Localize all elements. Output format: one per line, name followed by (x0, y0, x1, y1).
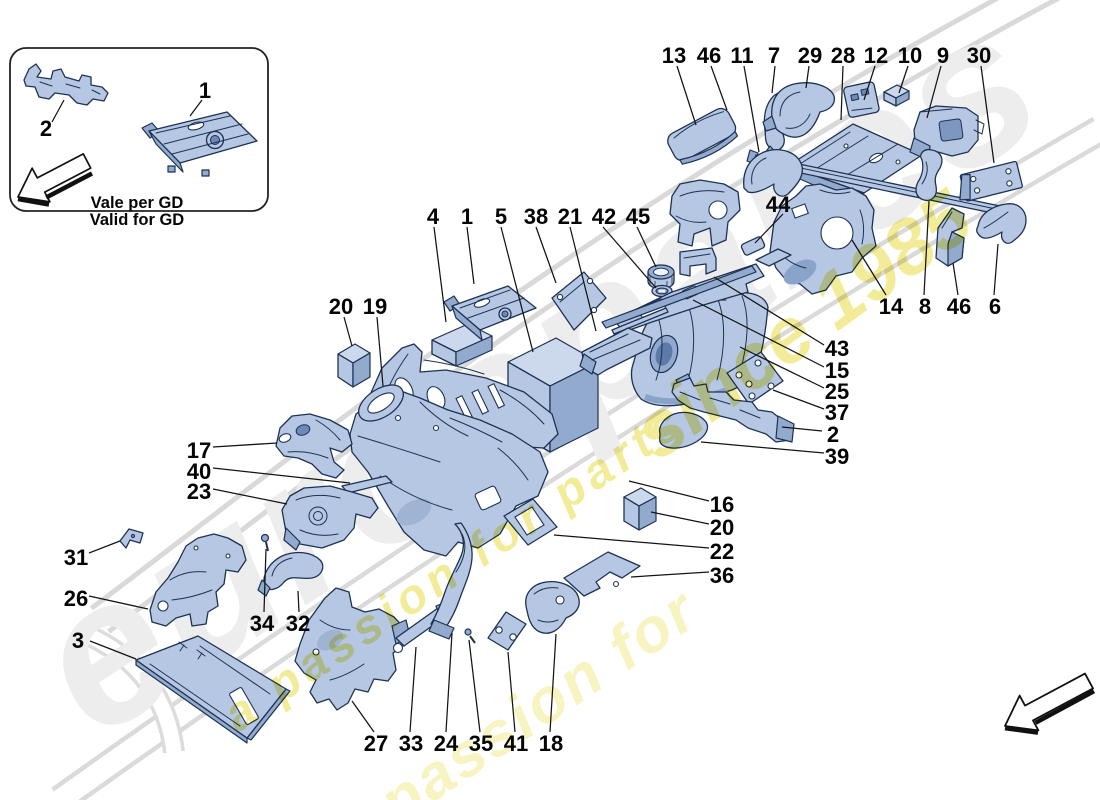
svg-text:39: 39 (825, 444, 849, 469)
svg-text:20: 20 (329, 294, 353, 319)
svg-text:20: 20 (710, 515, 734, 540)
svg-text:3: 3 (72, 628, 84, 653)
svg-text:30: 30 (967, 43, 991, 68)
svg-text:45: 45 (626, 204, 650, 229)
svg-text:46: 46 (947, 294, 971, 319)
svg-text:31: 31 (64, 545, 88, 570)
svg-text:Valid for GD: Valid for GD (90, 211, 185, 229)
svg-text:13: 13 (662, 43, 686, 68)
svg-text:41: 41 (504, 731, 528, 756)
svg-text:19: 19 (363, 294, 387, 319)
svg-text:21: 21 (558, 204, 582, 229)
svg-text:36: 36 (710, 563, 734, 588)
svg-text:46: 46 (697, 43, 721, 68)
svg-text:14: 14 (879, 294, 904, 319)
svg-text:12: 12 (864, 43, 888, 68)
svg-text:29: 29 (798, 43, 822, 68)
svg-text:42: 42 (592, 204, 616, 229)
svg-text:44: 44 (766, 192, 791, 217)
svg-text:22: 22 (710, 539, 734, 564)
svg-text:33: 33 (399, 731, 423, 756)
svg-text:11: 11 (730, 43, 753, 68)
svg-text:38: 38 (524, 204, 548, 229)
svg-text:26: 26 (64, 586, 88, 611)
svg-text:Vale per GD: Vale per GD (91, 194, 184, 212)
svg-text:9: 9 (937, 43, 949, 68)
svg-text:23: 23 (187, 479, 211, 504)
svg-text:16: 16 (710, 492, 734, 517)
svg-text:34: 34 (250, 611, 275, 636)
svg-text:24: 24 (434, 731, 459, 756)
svg-text:7: 7 (768, 43, 780, 68)
svg-text:2: 2 (40, 116, 52, 141)
svg-text:35: 35 (469, 731, 493, 756)
svg-text:5: 5 (495, 204, 507, 229)
svg-text:4: 4 (427, 204, 440, 229)
svg-text:10: 10 (898, 43, 922, 68)
svg-text:32: 32 (286, 611, 310, 636)
svg-text:1: 1 (461, 204, 473, 229)
svg-text:28: 28 (831, 43, 855, 68)
svg-text:1: 1 (199, 78, 211, 103)
svg-text:27: 27 (364, 731, 388, 756)
svg-text:6: 6 (989, 294, 1001, 319)
svg-text:18: 18 (539, 731, 563, 756)
svg-text:8: 8 (919, 294, 931, 319)
